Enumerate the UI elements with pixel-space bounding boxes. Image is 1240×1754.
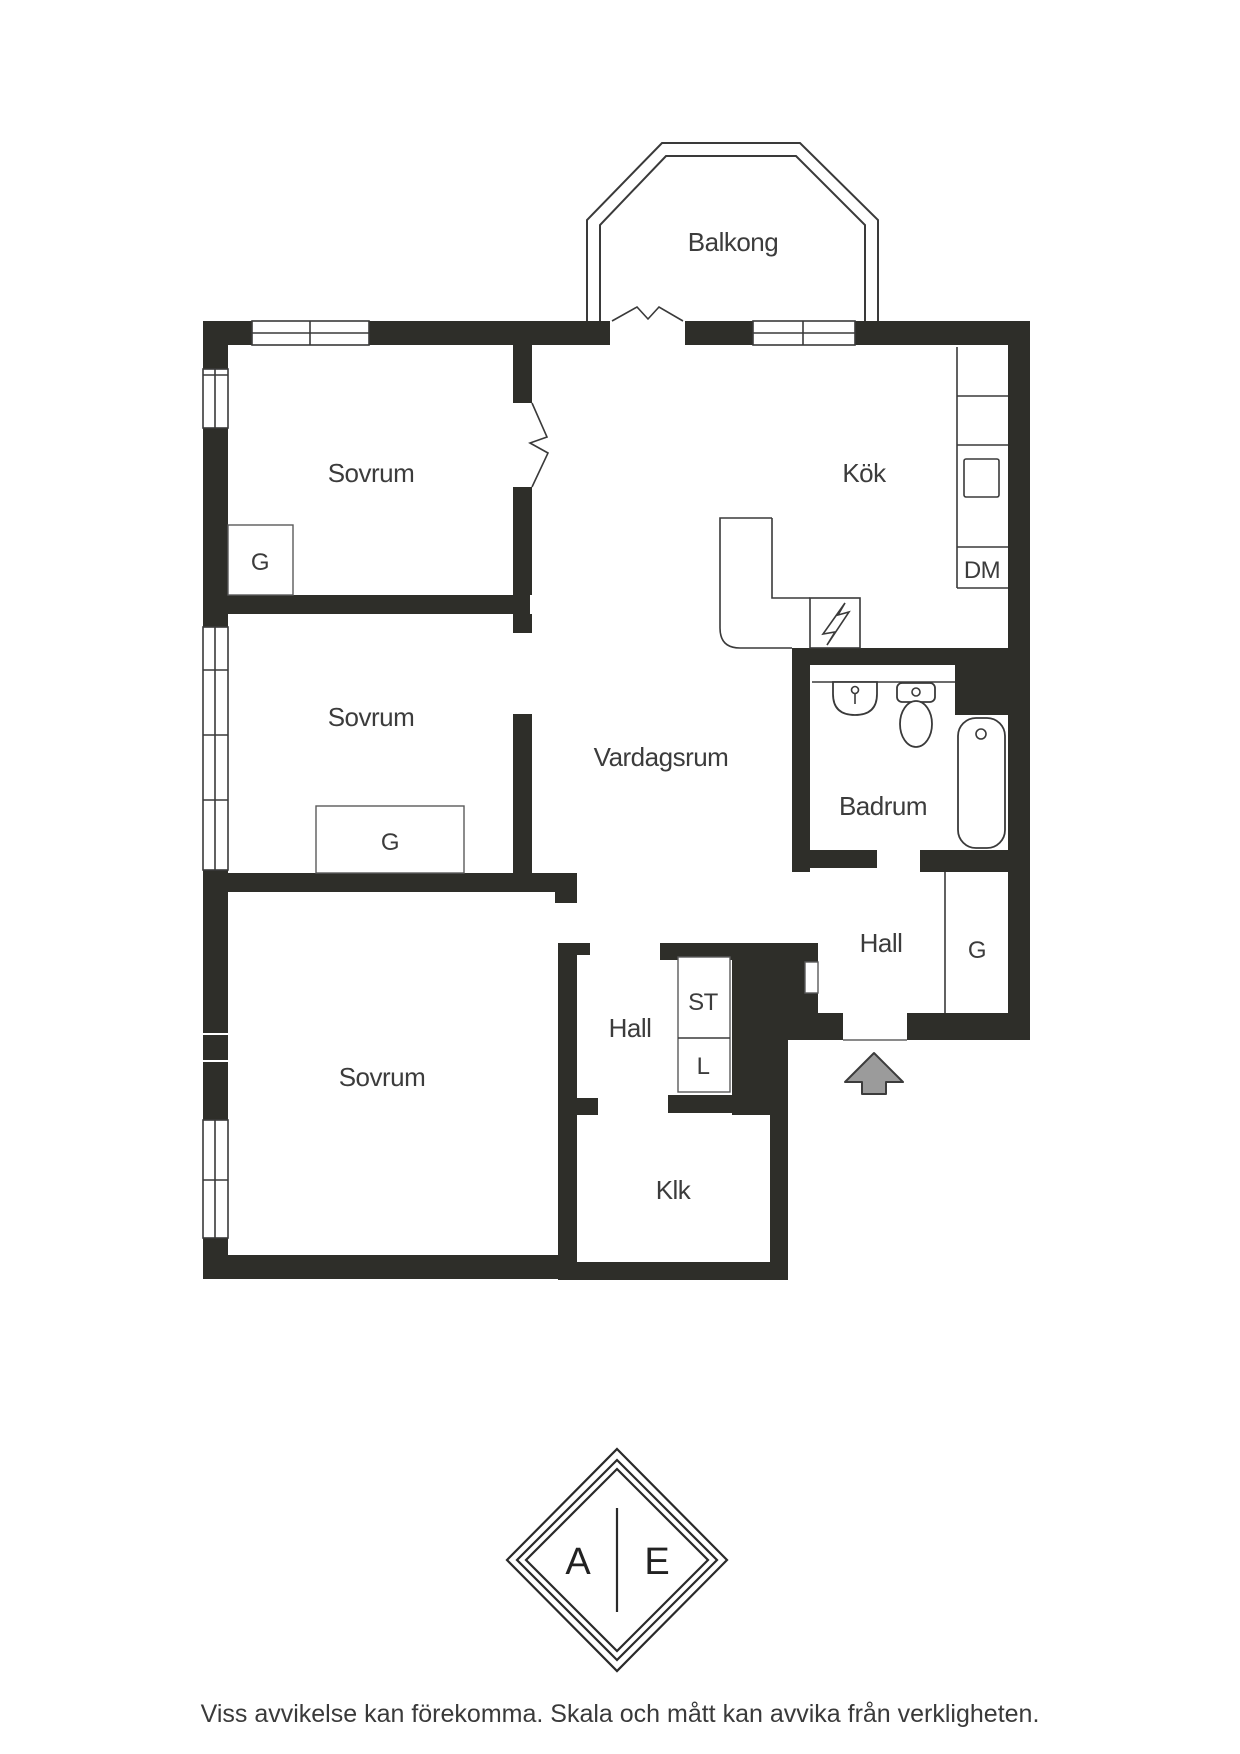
kitchen-sink: [964, 459, 999, 497]
logo-letter-left: A: [565, 1541, 591, 1583]
balcony-label: Balkong: [688, 227, 778, 257]
sink: [833, 682, 877, 715]
dishwasher-label: DM: [964, 557, 1000, 584]
wardrobe1-label: G: [251, 549, 269, 576]
entry: [843, 1040, 907, 1094]
living-room-label: Vardagsrum: [594, 742, 729, 772]
wardrobe3-label: G: [968, 937, 986, 964]
floorplan-canvas: Balkong Sovrum Kök Sovrum Vardagsrum Bad…: [0, 0, 1240, 1754]
wardrobe2-label: G: [381, 829, 399, 856]
kitchen-label: Kök: [842, 458, 887, 488]
disclaimer-text: Viss avvikelse kan förekomma. Skala och …: [201, 1700, 1040, 1728]
linen-closet-label: L: [697, 1053, 710, 1080]
hall-door-notch: [805, 962, 818, 993]
stove-lightning-icon: [823, 603, 849, 645]
hall-right-label: Hall: [860, 928, 903, 958]
stove: [810, 598, 860, 648]
balcony-door-zigzag: [612, 307, 683, 321]
floorplan-page: Balkong Sovrum Kök Sovrum Vardagsrum Bad…: [0, 0, 1240, 1754]
hall-center-label: Hall: [609, 1013, 652, 1043]
bedroom1-label: Sovrum: [328, 458, 415, 488]
bedroom1-opening-zigzag: [530, 403, 548, 487]
cleaning-closet-label: ST: [688, 989, 719, 1016]
walkin-closet-label: Klk: [656, 1175, 692, 1205]
bathtub: [958, 718, 1005, 848]
bedroom2-label: Sovrum: [328, 702, 415, 732]
kitchen-counter: [957, 347, 1008, 588]
toilet: [897, 683, 935, 747]
logo-letter-right: E: [644, 1541, 669, 1583]
agency-logo: A E: [507, 1449, 727, 1671]
bedroom3-label: Sovrum: [339, 1062, 426, 1092]
entry-arrow-icon: [845, 1053, 903, 1094]
kitchen-peninsula: [720, 518, 860, 648]
bathroom-label: Badrum: [839, 791, 927, 821]
